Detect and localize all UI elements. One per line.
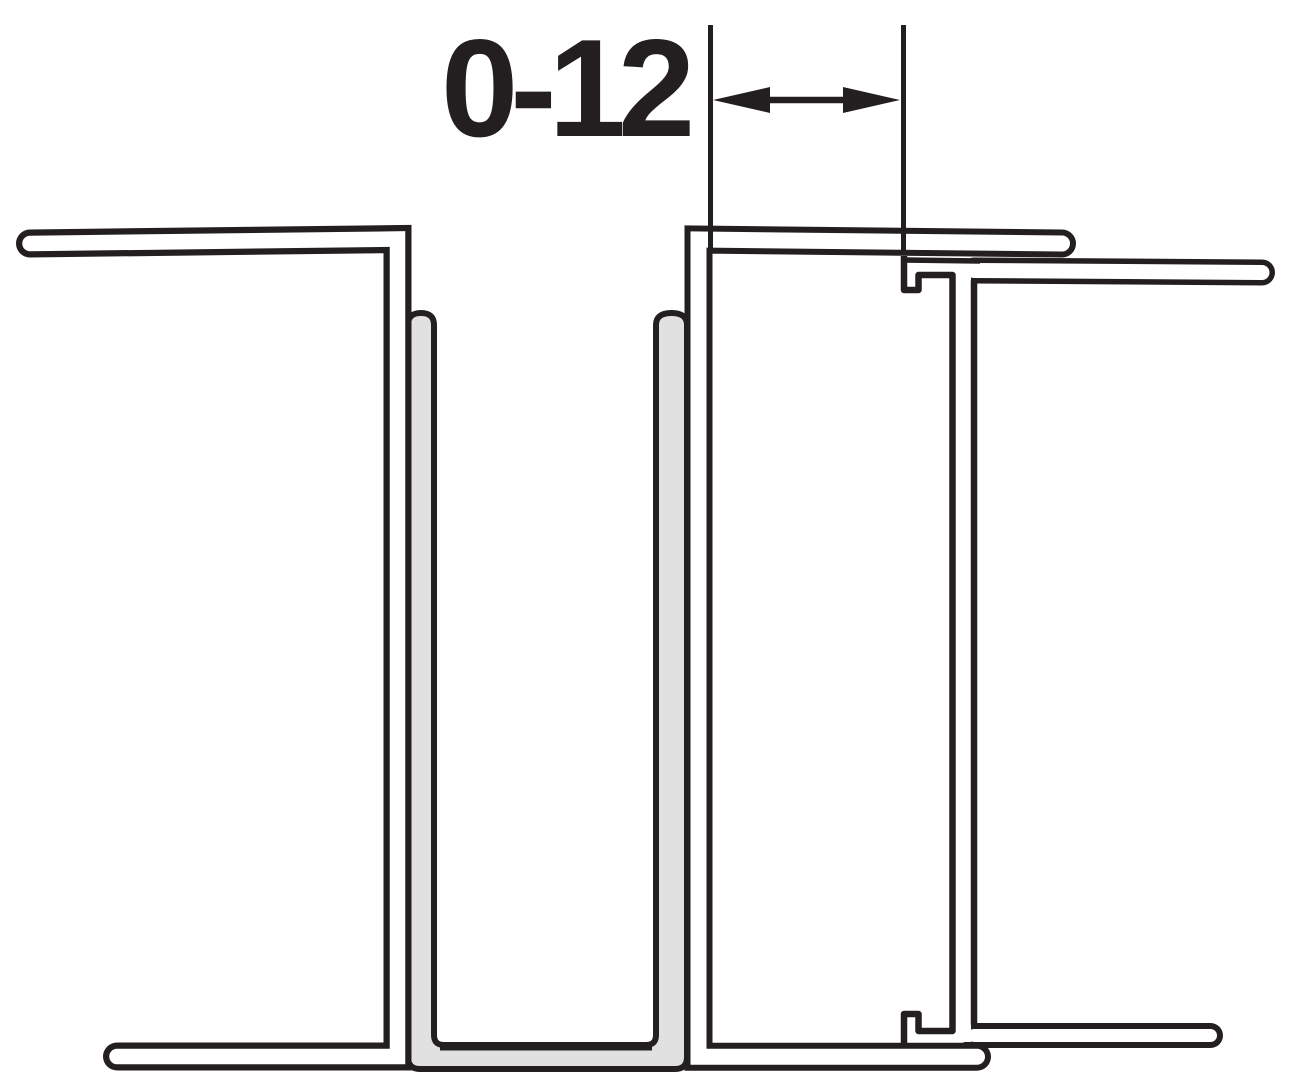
svg-text:0-12: 0-12 [441, 11, 690, 166]
